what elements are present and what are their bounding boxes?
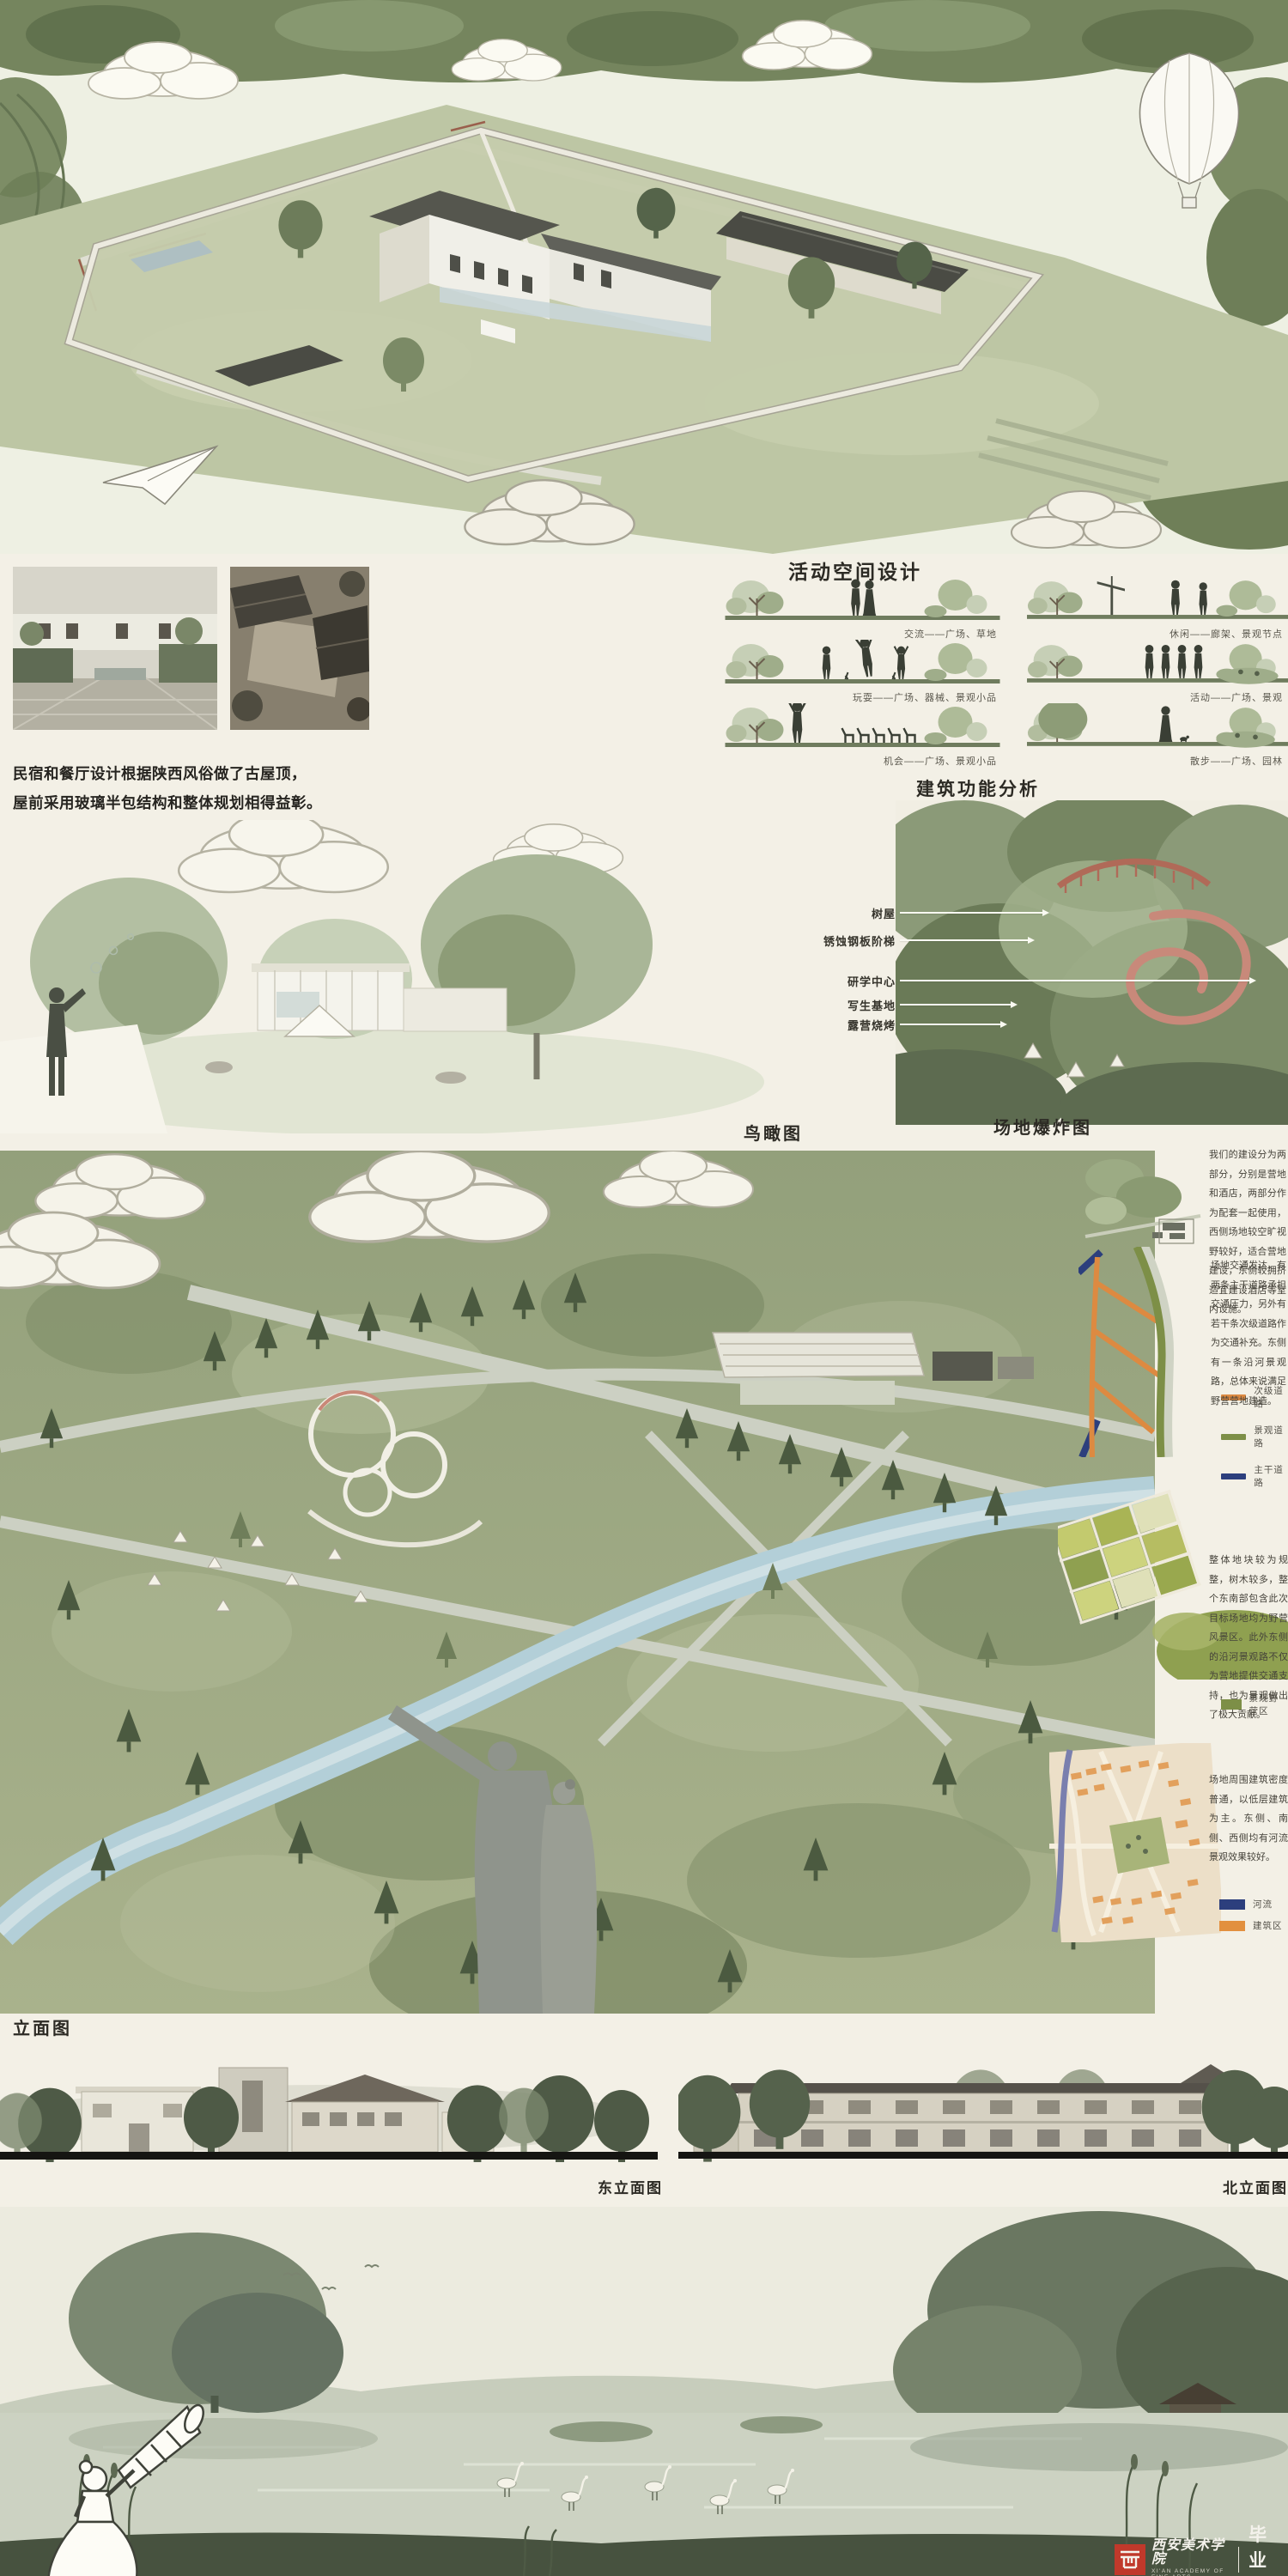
activity-diagram-stroll <box>1027 703 1288 750</box>
activity-caption-1: 交流——广场、草地 <box>723 627 1002 641</box>
hero-render <box>0 0 1288 554</box>
function-label-treehouse: 树屋 <box>793 905 896 921</box>
activity-cell-1: 交流——广场、草地 <box>723 576 1002 641</box>
legend-swatch-main-road <box>1221 1473 1246 1479</box>
aerial-view-render <box>0 1151 1155 2014</box>
seal-glyph-icon <box>1119 2549 1141 2571</box>
intro-line-2: 屋前采用玻璃半包结构和整体规划相得益彰。 <box>13 788 339 817</box>
site-title: 场地爆炸图 <box>993 1114 1092 1139</box>
legend-label: 景观道路 <box>1254 1424 1288 1449</box>
poster-root: 民宿和餐厅设计根据陕西风俗做了古屋顶， 屋前采用玻璃半包结构和整体规划相得益彰。… <box>0 0 1288 2576</box>
east-elevation-caption: 东立面图 <box>570 2176 690 2197</box>
legend-item-scenic-road: 景观道路 <box>1221 1424 1288 1449</box>
map-legend: 河流 建筑区 <box>1219 1898 1283 1946</box>
photo-courtyard-view <box>13 567 217 730</box>
activity-cell-2: 休闲——廊架、景观节点 <box>1027 576 1288 641</box>
perspective-render <box>0 820 777 1133</box>
watermark-divider <box>1238 2547 1239 2573</box>
leader-line <box>900 1004 1012 1005</box>
function-label-study-center: 研学中心 <box>793 973 896 989</box>
wetland-scene <box>0 2207 1288 2576</box>
activity-diagram-leisure <box>1027 576 1288 623</box>
east-elevation-drawing <box>0 2042 661 2162</box>
site-icon-diagram <box>1080 1144 1206 1254</box>
activity-caption-4: 活动——广场、景观 <box>1027 690 1288 704</box>
academy-name-cn: 西安美术学院 <box>1151 2539 1229 2567</box>
activity-diagram-activity <box>1027 640 1288 686</box>
legend-item-river: 河流 <box>1219 1898 1283 1911</box>
aerial-title: 鸟瞰图 <box>744 1120 803 1145</box>
activity-caption-6: 散步——广场、园林 <box>1027 754 1288 768</box>
site-text-4: 场地周围建筑密度普通，以低层建筑为主。东侧、南侧、西侧均有河流景观效果较好。 <box>1209 1771 1288 1868</box>
leader-line <box>900 912 1043 914</box>
leader-line <box>900 939 1029 941</box>
legend-label: 建筑区 <box>1253 1919 1283 1932</box>
legend-swatch-scenic-road <box>1221 1434 1246 1440</box>
activity-diagram-play <box>723 640 1002 686</box>
leader-line <box>900 1024 1001 1025</box>
activity-cell-6: 散步——广场、园林 <box>1027 703 1288 768</box>
photo-roof-aerial <box>230 567 369 730</box>
function-section-title: 建筑功能分析 <box>916 775 1040 801</box>
site-text-2: 场地交通发达，有两条主干道路承担交通压力，另外有若干条次级道路作为交通补充。东侧… <box>1211 1256 1286 1411</box>
site-text-3: 整体地块较为规整，树木较多，整个东南部包含此次目标场地均为野营风景区。此外东侧的… <box>1209 1551 1288 1725</box>
function-label-camp-bbq: 露营烧烤 <box>793 1017 896 1033</box>
activity-cell-4: 活动——广场、景观 <box>1027 640 1288 704</box>
academy-name-en: XI'AN ACADEMY OF FINE ARTS <box>1151 2569 1229 2576</box>
intro-paragraph: 民宿和餐厅设计根据陕西风俗做了古屋顶， 屋前采用玻璃半包结构和整体规划相得益彰。 <box>13 759 339 817</box>
road-network-diagram <box>1078 1247 1207 1457</box>
academy-seal-icon <box>1115 2544 1145 2575</box>
academy-name-block: 西安美术学院 XI'AN ACADEMY OF FINE ARTS <box>1151 2539 1229 2576</box>
north-elevation-caption: 北立面图 <box>1194 2176 1288 2197</box>
activity-diagram-communication <box>723 576 1002 623</box>
watermark-logo-row: 西安美术学院 XI'AN ACADEMY OF FINE ARTS 毕业展 <box>1115 2521 1288 2576</box>
east-ground-bar <box>0 2152 658 2160</box>
watermark: 西安美术学院 XI'AN ACADEMY OF FINE ARTS 毕业展 xa… <box>1115 2521 1288 2576</box>
function-label-steel-stairs: 锈蚀钢板阶梯 <box>793 933 896 949</box>
activity-diagram-opportunity <box>723 703 1002 750</box>
activity-section: 活动空间设计 交流——广场、草地 休闲——廊架、景观节点 <box>723 554 1288 767</box>
north-elevation-drawing <box>678 2050 1288 2164</box>
activity-caption-2: 休闲——廊架、景观节点 <box>1027 627 1288 641</box>
intro-line-1: 民宿和餐厅设计根据陕西风俗做了古屋顶， <box>13 759 339 788</box>
activity-cell-5: 机会——广场、景观小品 <box>723 703 1002 768</box>
leader-line <box>900 980 1250 981</box>
function-label-sketch-base: 写生基地 <box>793 997 896 1013</box>
urban-context-map <box>1049 1743 1221 1942</box>
legend-item-buildings: 建筑区 <box>1219 1919 1283 1932</box>
activity-cell-3: 玩耍——广场、器械、景观小品 <box>723 640 1002 704</box>
exhibition-label: 毕业展 <box>1249 2521 1288 2576</box>
activity-caption-3: 玩耍——广场、器械、景观小品 <box>723 690 1002 704</box>
elevation-section-title: 立面图 <box>13 2014 72 2039</box>
function-analysis-render <box>896 800 1288 1125</box>
legend-label: 河流 <box>1253 1898 1273 1911</box>
legend-swatch-buildings <box>1219 1921 1245 1931</box>
legend-swatch-river <box>1219 1899 1245 1910</box>
activity-caption-5: 机会——广场、景观小品 <box>723 754 1002 768</box>
north-ground-bar <box>678 2152 1288 2159</box>
